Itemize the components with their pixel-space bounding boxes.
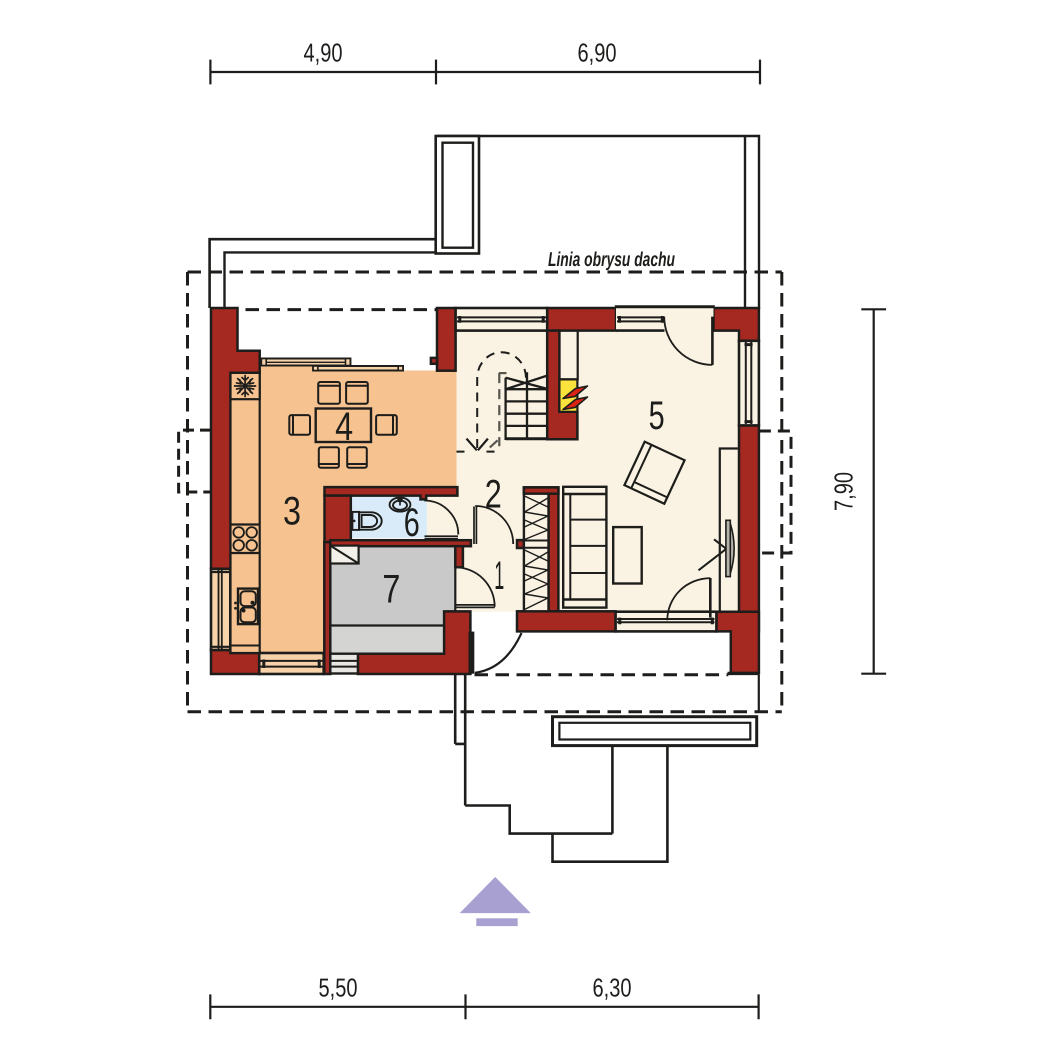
svg-text:7,90: 7,90 xyxy=(829,472,859,511)
svg-text:6,30: 6,30 xyxy=(593,973,632,1003)
svg-text:4,90: 4,90 xyxy=(304,38,343,68)
svg-text:Linia obrysu dachu: Linia obrysu dachu xyxy=(548,249,675,271)
svg-text:5: 5 xyxy=(649,394,665,438)
svg-text:5,50: 5,50 xyxy=(319,973,358,1003)
svg-text:4: 4 xyxy=(335,405,353,449)
svg-text:6,90: 6,90 xyxy=(578,38,617,68)
svg-text:7: 7 xyxy=(382,568,400,612)
svg-text:6: 6 xyxy=(404,501,420,545)
svg-text:1: 1 xyxy=(494,554,504,598)
svg-text:3: 3 xyxy=(283,490,301,534)
